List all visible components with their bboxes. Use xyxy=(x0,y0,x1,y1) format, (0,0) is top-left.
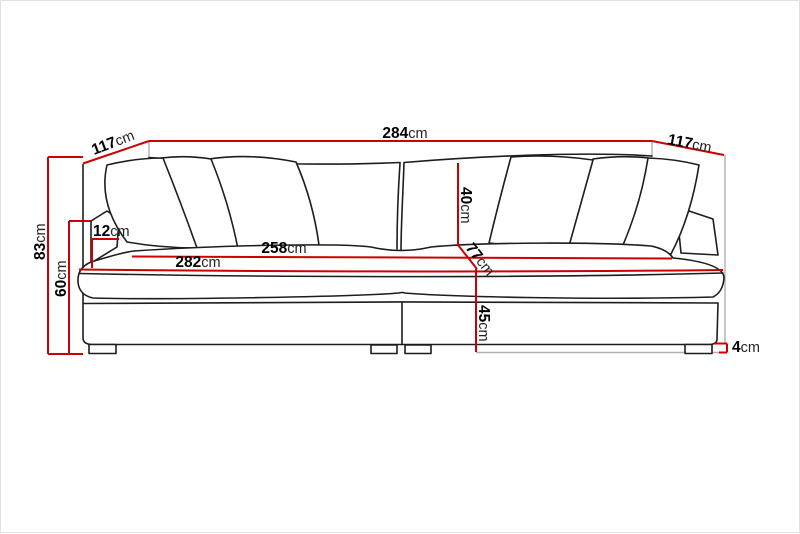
label-depth-right: 117cm xyxy=(666,131,713,156)
leg-outer-right xyxy=(685,345,712,354)
leg-outer-left xyxy=(89,345,116,354)
back-centre-seam-left xyxy=(397,163,400,249)
label-armrest-width: 12cm xyxy=(93,223,130,240)
sofa-base xyxy=(83,302,718,345)
diagram-svg: 284cm 117cm 117cm 83cm 60cm 12cm 258cm 2… xyxy=(1,1,800,534)
label-seat-height: 45cm xyxy=(475,305,492,342)
sofa-dimension-diagram: 284cm 117cm 117cm 83cm 60cm 12cm 258cm 2… xyxy=(0,0,800,533)
label-overall-width: 284cm xyxy=(382,125,427,142)
leg-centre-right xyxy=(405,345,431,354)
label-arm-height: 60cm xyxy=(53,260,70,297)
label-back-cushion-height: 40cm xyxy=(457,187,474,224)
label-seat-width: 282cm xyxy=(175,254,220,271)
back-centre-seam-right xyxy=(401,163,404,252)
label-inner-seat-width: 258cm xyxy=(261,240,306,257)
label-total-height: 83cm xyxy=(32,223,49,260)
leg-centre-left xyxy=(371,345,397,354)
label-leg-height: 4cm xyxy=(732,339,760,356)
